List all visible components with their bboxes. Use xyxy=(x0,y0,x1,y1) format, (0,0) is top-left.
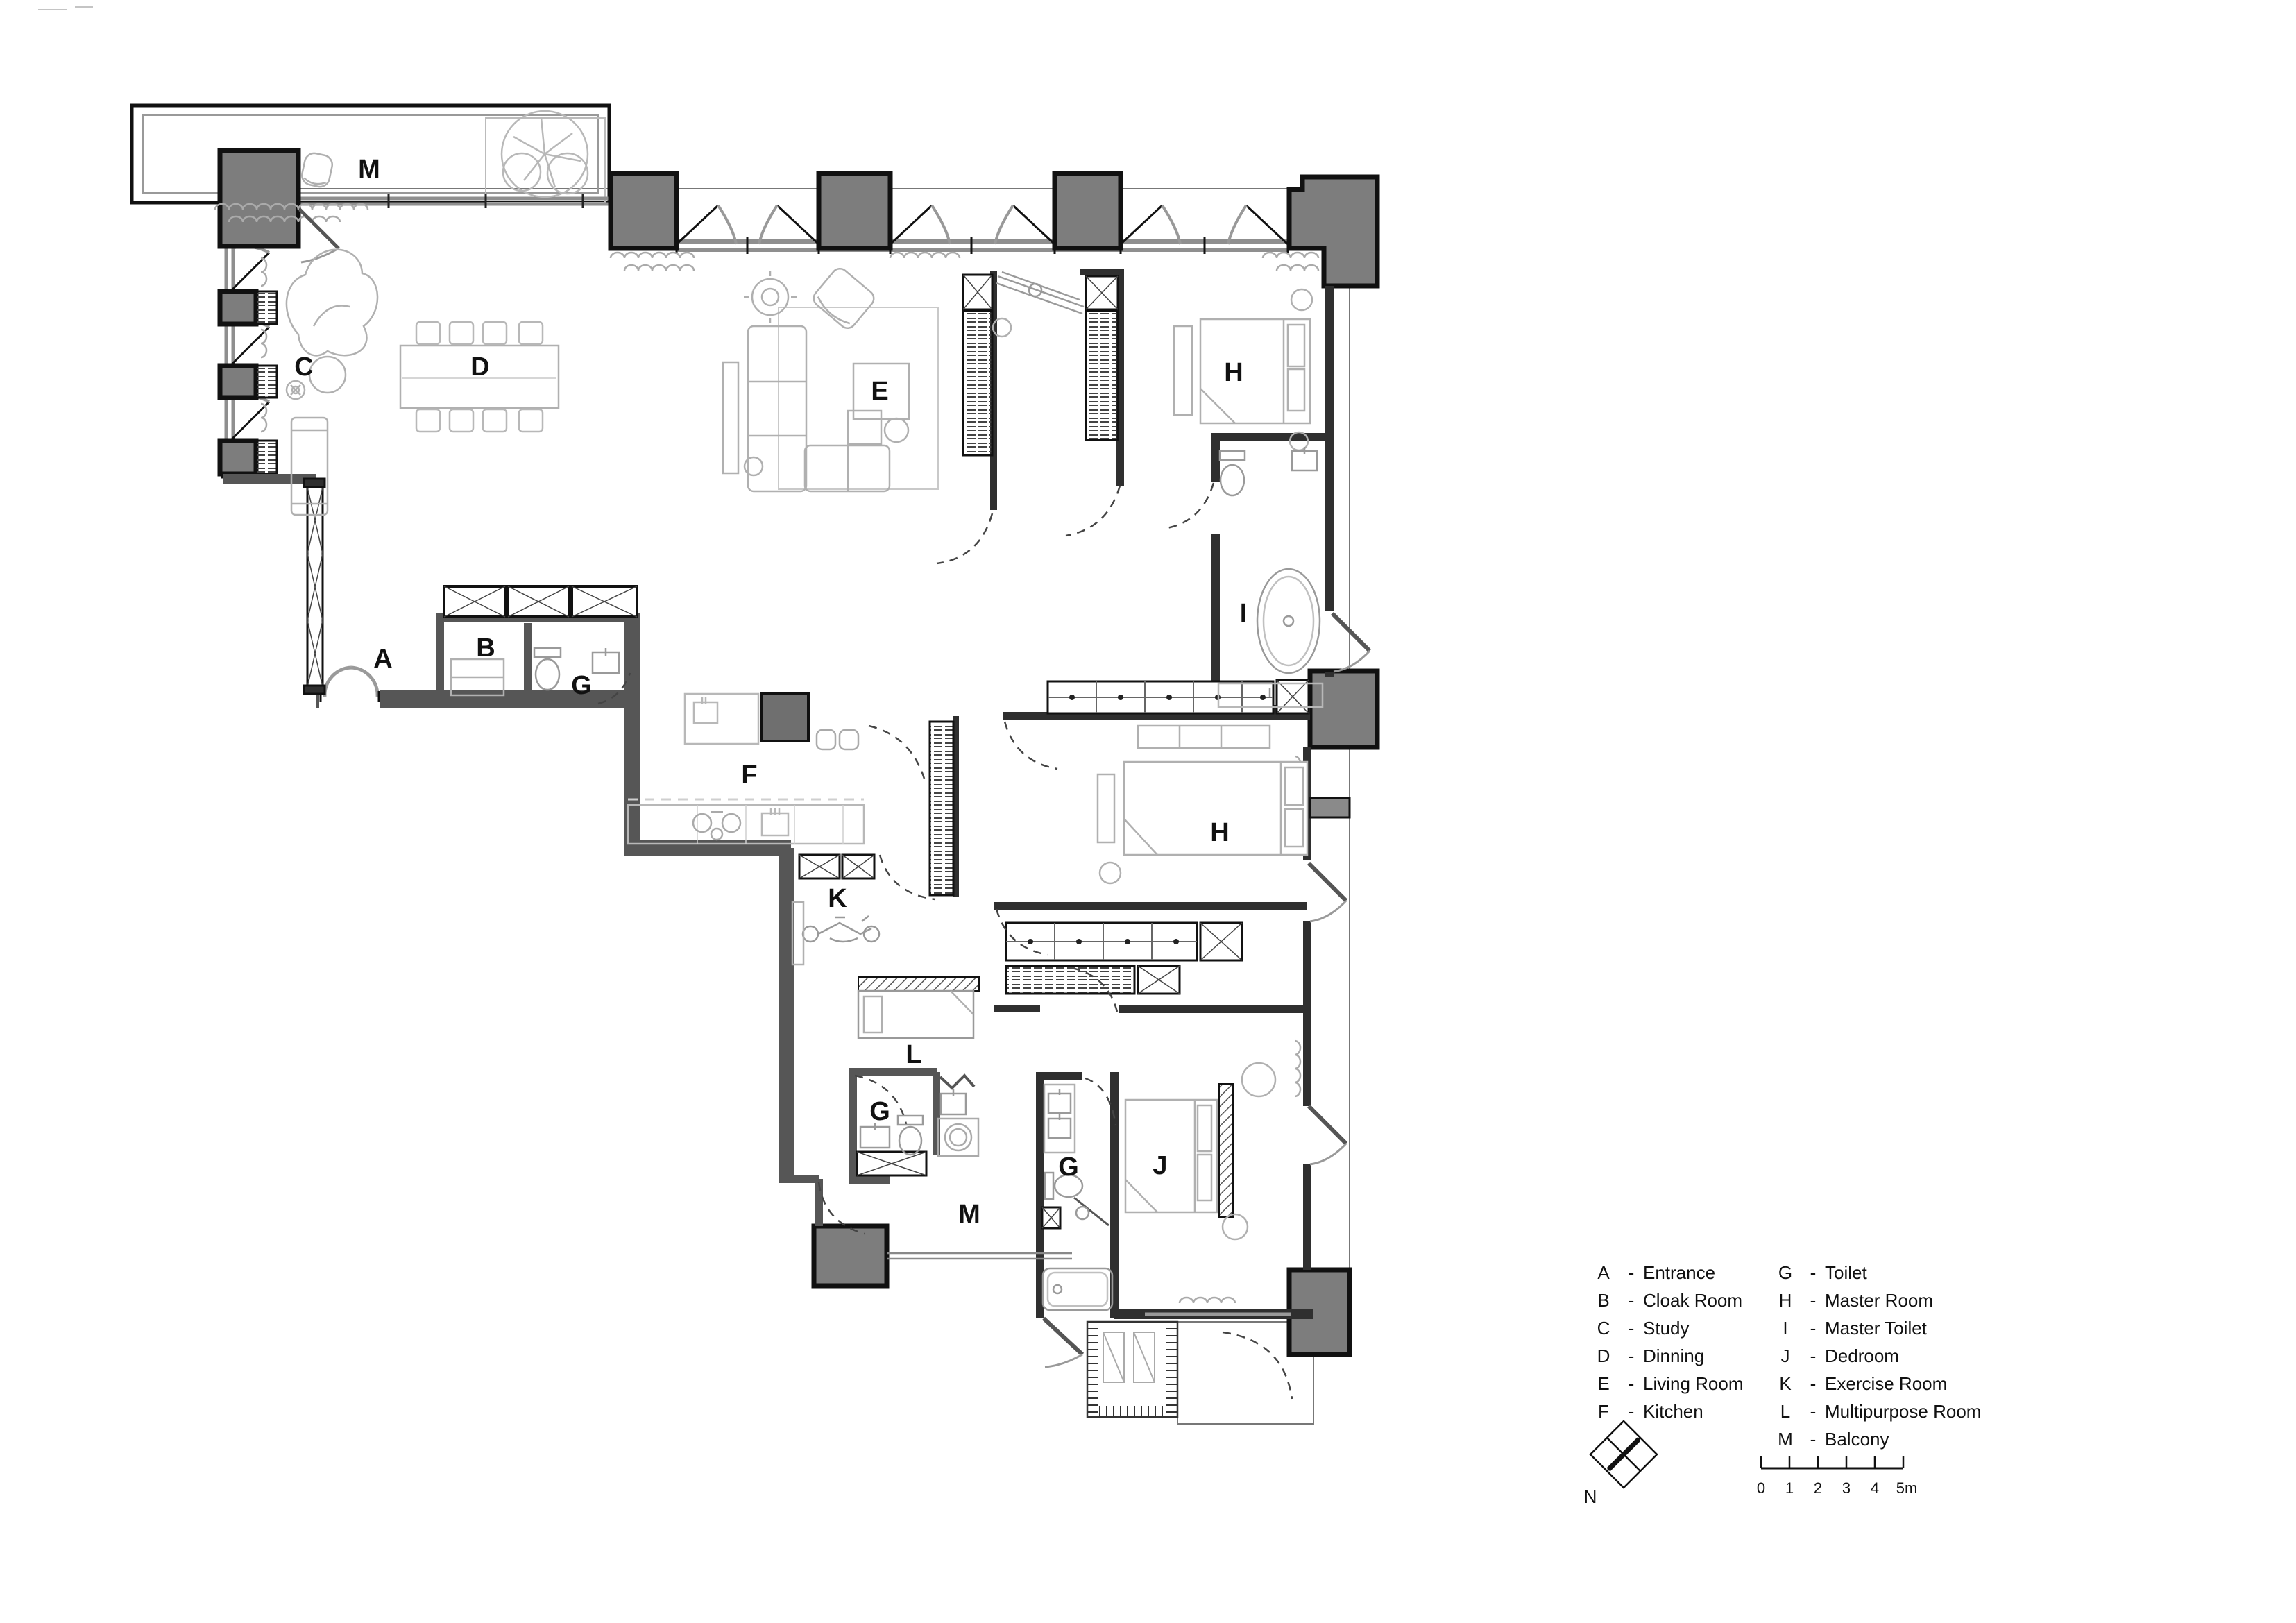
rug xyxy=(779,307,938,489)
legend-item-entrance: A - Entrance xyxy=(1588,1259,1744,1286)
legend-name: Living Room xyxy=(1643,1373,1744,1395)
legend-letter: L xyxy=(1769,1401,1801,1422)
legend-dash: - xyxy=(1619,1373,1643,1395)
legend-name: Multipurpose Room xyxy=(1825,1401,1981,1422)
legend-letter: B xyxy=(1588,1290,1619,1311)
legend-name: Toilet xyxy=(1825,1262,1981,1284)
sink-icon xyxy=(860,1123,890,1148)
shower-icon xyxy=(1074,1198,1109,1225)
balcony-bottom-structure xyxy=(887,1253,1177,1417)
legend-dash: - xyxy=(1801,1290,1825,1311)
room-label-exercise: K xyxy=(828,884,847,913)
legend-dash: - xyxy=(1801,1318,1825,1339)
double-bed-icon xyxy=(1200,319,1310,423)
legend-item-master-room: H - Master Room xyxy=(1769,1286,1981,1314)
legend-item-dedroom: J - Dedroom xyxy=(1769,1342,1981,1370)
legend-item-living-room: E - Living Room xyxy=(1588,1370,1744,1397)
legend-item-exercise-room: K - Exercise Room xyxy=(1769,1370,1981,1397)
low-cabinet xyxy=(1138,726,1270,748)
legend-dash: - xyxy=(1619,1401,1643,1422)
bedside-pouf-icon xyxy=(1223,1214,1248,1239)
toilet-icon xyxy=(898,1116,923,1155)
bathtub-icon xyxy=(1043,1268,1112,1310)
right-wall-block xyxy=(1310,798,1350,817)
toilet-icon xyxy=(534,648,561,690)
room-label-toilet3: G xyxy=(1058,1153,1079,1182)
sink-icon xyxy=(694,697,717,723)
round-table-icon xyxy=(309,357,346,393)
room-label-balcony-bottom: M xyxy=(958,1200,980,1229)
floor-lamp-icon xyxy=(744,271,797,323)
legend-item-study: C - Study xyxy=(1588,1314,1744,1342)
legend-column-2: G - Toilet H - Master Room I - Master To… xyxy=(1769,1259,1981,1453)
swing-window-icon xyxy=(677,205,1288,244)
room-label-multipurpose: L xyxy=(905,1040,921,1069)
scale-tick-1: 1 xyxy=(1785,1479,1794,1497)
legend-item-cloak-room: B - Cloak Room xyxy=(1588,1286,1744,1314)
plant-icon xyxy=(287,381,305,399)
pouf-icon xyxy=(885,418,908,442)
exercise-bike-icon xyxy=(803,916,879,942)
sofa-icon xyxy=(748,326,890,491)
legend-item-balcony: M - Balcony xyxy=(1769,1425,1981,1453)
legend-name: Balcony xyxy=(1825,1429,1981,1450)
room-label-kitchen: F xyxy=(741,760,757,790)
entrance-screen xyxy=(304,479,325,694)
legend-name: Study xyxy=(1643,1318,1744,1339)
scale-tick-2: 2 xyxy=(1814,1479,1822,1497)
master2-furniture xyxy=(1098,726,1307,883)
legend-column-1: A - Entrance B - Cloak Room C - Study D … xyxy=(1588,1259,1744,1425)
legend-name: Dedroom xyxy=(1825,1345,1981,1367)
drying-rack-icon xyxy=(996,272,1084,314)
room-label-master-toilet: I xyxy=(1240,599,1248,628)
legend-name: Master Room xyxy=(1825,1290,1981,1311)
legend-letter: K xyxy=(1769,1373,1801,1395)
scale-tick-5m: 5m xyxy=(1896,1479,1918,1497)
sink-icon xyxy=(1048,1114,1071,1138)
entrance-door-gap xyxy=(319,690,380,711)
top-window-wall xyxy=(677,205,1289,254)
legend-name: Kitchen xyxy=(1643,1401,1744,1422)
legend-letter: D xyxy=(1588,1345,1619,1367)
legend-letter: I xyxy=(1769,1318,1801,1339)
legend-name: Dinning xyxy=(1643,1345,1744,1367)
scale-tick-0: 0 xyxy=(1757,1479,1765,1497)
bedroom-j-furniture xyxy=(1125,1063,1275,1239)
headboard-hatch xyxy=(858,977,979,991)
master-toilet-fixtures xyxy=(1218,447,1323,707)
single-bed-icon xyxy=(858,991,973,1038)
legend-dash: - xyxy=(1619,1262,1643,1284)
sink-icon xyxy=(593,648,619,673)
bar-chair-icon xyxy=(840,730,858,749)
tv-console xyxy=(723,362,738,473)
legend-letter: E xyxy=(1588,1373,1619,1395)
toilet3-fixtures xyxy=(1043,1085,1112,1310)
bedside-pouf-icon xyxy=(1100,863,1121,883)
legend-name: Master Toilet xyxy=(1825,1318,1981,1339)
north-label: N xyxy=(1584,1486,1597,1507)
sink-icon xyxy=(1292,447,1317,470)
organic-sofa-icon xyxy=(287,250,377,356)
sink-icon xyxy=(762,808,788,835)
washing-machine-icon xyxy=(938,1119,978,1156)
legend-name: Exercise Room xyxy=(1825,1373,1981,1395)
double-bed-icon xyxy=(1125,1100,1217,1212)
legend-item-dinning: D - Dinning xyxy=(1588,1342,1744,1370)
legend-dash: - xyxy=(1619,1318,1643,1339)
room-label-entrance: A xyxy=(373,645,392,674)
room-label-living: E xyxy=(871,377,888,406)
legend-letter: G xyxy=(1769,1262,1801,1284)
cooktop-icon xyxy=(693,812,740,840)
legend-letter: M xyxy=(1769,1429,1801,1450)
room-label-cloak: B xyxy=(476,634,495,663)
room-label-study: C xyxy=(294,352,313,382)
room-label-dinning: D xyxy=(470,352,489,382)
legend-name: Entrance xyxy=(1643,1262,1744,1284)
legend-item-multipurpose-room: L - Multipurpose Room xyxy=(1769,1397,1981,1425)
multipurpose-furniture xyxy=(858,977,979,1038)
bed-bench xyxy=(1098,774,1114,842)
legend-letter: C xyxy=(1588,1318,1619,1339)
legend-dash: - xyxy=(1619,1290,1643,1311)
cloak-room-furniture xyxy=(451,659,504,695)
scale-bar: 0 1 2 3 4 5m xyxy=(1757,1456,1917,1497)
bedside-pouf-icon xyxy=(1291,289,1312,310)
legend-letter: F xyxy=(1588,1401,1619,1422)
legend-dash: - xyxy=(1801,1429,1825,1450)
legend-item-kitchen: F - Kitchen xyxy=(1588,1397,1744,1425)
tree-icon xyxy=(502,111,588,197)
legend-dash: - xyxy=(1801,1373,1825,1395)
hall-closet-xboxes xyxy=(444,586,637,617)
bar-chair-icon xyxy=(817,730,835,749)
floor-plan-page: M C D E H I A B G F K H L G G J M N 0 1 … xyxy=(0,0,2296,1623)
north-arrow-icon: N xyxy=(1584,1421,1657,1507)
legend-item-toilet: G - Toilet xyxy=(1769,1259,1981,1286)
room-label-toilet2: G xyxy=(869,1097,890,1126)
legend-letter: H xyxy=(1769,1290,1801,1311)
room-label-master1: H xyxy=(1224,358,1243,387)
legend-dash: - xyxy=(1801,1345,1825,1367)
headboard-hatch xyxy=(1219,1084,1233,1217)
legend-dash: - xyxy=(1619,1345,1643,1367)
deck-planter xyxy=(1087,1322,1177,1417)
round-table-icon xyxy=(1242,1063,1275,1096)
legend-name: Cloak Room xyxy=(1643,1290,1744,1311)
room-label-balcony-top: M xyxy=(358,155,380,184)
legend-item-master-toilet: I - Master Toilet xyxy=(1769,1314,1981,1342)
legend-letter: J xyxy=(1769,1345,1801,1367)
room-label-master2: H xyxy=(1210,818,1229,847)
legend-dash: - xyxy=(1801,1401,1825,1422)
armchair-icon xyxy=(810,265,877,331)
bed-bench xyxy=(1174,326,1192,415)
room-label-toilet1: G xyxy=(571,671,592,700)
scale-tick-3: 3 xyxy=(1842,1479,1851,1497)
island-dark-block xyxy=(761,694,808,741)
scale-tick-4: 4 xyxy=(1871,1479,1879,1497)
left-column-shelves xyxy=(256,291,277,474)
legend-dash: - xyxy=(1801,1262,1825,1284)
sink-icon xyxy=(1048,1089,1071,1113)
room-label-dedroom: J xyxy=(1153,1151,1167,1180)
toilet-icon xyxy=(1220,451,1245,495)
bathtub-oval-icon xyxy=(1257,569,1320,673)
legend-letter: A xyxy=(1588,1262,1619,1284)
sink-icon xyxy=(941,1089,966,1114)
